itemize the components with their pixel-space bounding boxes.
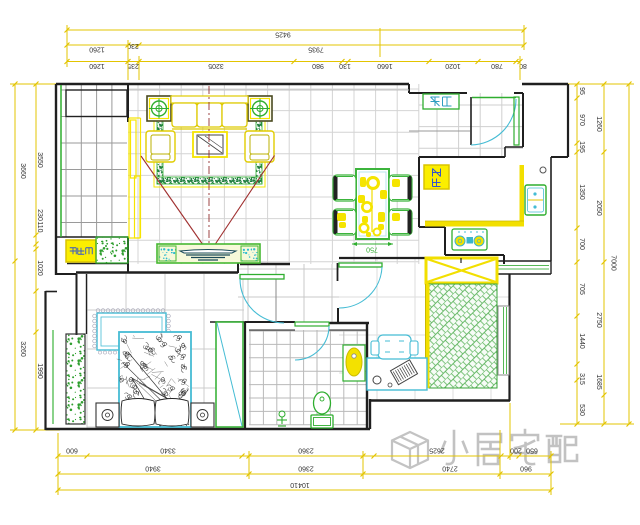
svg-text:2360: 2360 bbox=[298, 447, 314, 454]
svg-text:1260: 1260 bbox=[89, 62, 105, 69]
svg-text:3205: 3205 bbox=[208, 62, 224, 69]
svg-text:3940: 3940 bbox=[145, 465, 161, 472]
svg-text:705: 705 bbox=[578, 283, 585, 295]
svg-text:970: 970 bbox=[578, 114, 585, 126]
svg-text:130: 130 bbox=[339, 62, 351, 69]
svg-text:1350: 1350 bbox=[578, 184, 585, 200]
svg-text:2625: 2625 bbox=[429, 447, 445, 454]
svg-text:2050: 2050 bbox=[595, 200, 602, 216]
svg-text:110: 110 bbox=[36, 221, 43, 232]
svg-text:235: 235 bbox=[127, 62, 139, 69]
svg-text:2360: 2360 bbox=[298, 465, 314, 472]
svg-text:7000: 7000 bbox=[610, 255, 617, 271]
svg-text:9425: 9425 bbox=[275, 31, 291, 38]
svg-text:230: 230 bbox=[36, 209, 43, 221]
svg-text:200: 200 bbox=[510, 447, 522, 454]
svg-text:600: 600 bbox=[66, 447, 78, 454]
svg-text:530: 530 bbox=[578, 404, 585, 416]
svg-text:700: 700 bbox=[578, 238, 585, 250]
svg-text:1020: 1020 bbox=[445, 62, 461, 69]
svg-text:195: 195 bbox=[578, 141, 585, 153]
svg-text:7935: 7935 bbox=[308, 46, 324, 53]
svg-text:960: 960 bbox=[520, 465, 532, 472]
svg-text:980: 980 bbox=[312, 62, 324, 69]
svg-text:2740: 2740 bbox=[442, 465, 458, 472]
svg-text:3340: 3340 bbox=[160, 447, 176, 454]
svg-text:1660: 1660 bbox=[377, 62, 393, 69]
svg-text:1440: 1440 bbox=[578, 333, 585, 349]
svg-text:1260: 1260 bbox=[595, 116, 602, 132]
svg-text:780: 780 bbox=[491, 62, 503, 69]
svg-text:750: 750 bbox=[366, 246, 378, 253]
svg-text:2750: 2750 bbox=[595, 312, 602, 328]
svg-text:3660: 3660 bbox=[19, 163, 26, 179]
svg-text:315: 315 bbox=[578, 373, 585, 385]
svg-text:1685: 1685 bbox=[595, 374, 602, 390]
svg-text:10410: 10410 bbox=[290, 481, 310, 488]
svg-text:1260: 1260 bbox=[89, 46, 105, 53]
svg-text:3550: 3550 bbox=[36, 152, 43, 168]
svg-text:1020: 1020 bbox=[36, 260, 43, 276]
svg-text:3260: 3260 bbox=[19, 341, 26, 357]
svg-text:1990: 1990 bbox=[36, 363, 43, 379]
svg-text:230: 230 bbox=[127, 42, 139, 49]
svg-text:650: 650 bbox=[526, 447, 538, 454]
svg-text:95: 95 bbox=[578, 87, 585, 95]
